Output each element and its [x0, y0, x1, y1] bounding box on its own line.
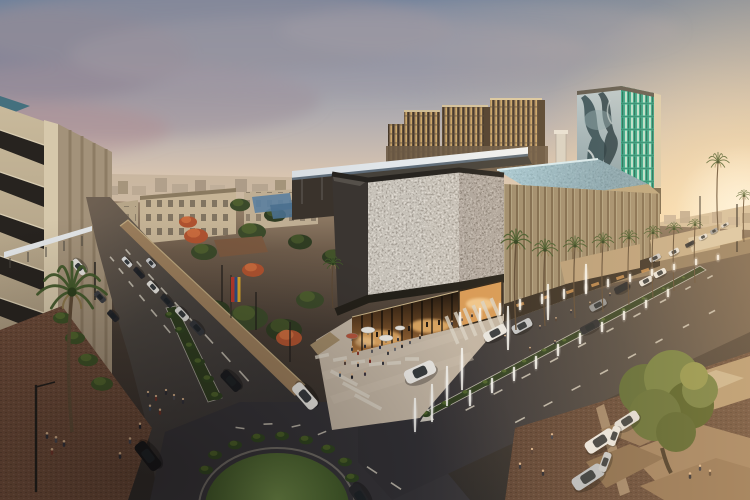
scene-svg: [0, 0, 750, 500]
vignette: [0, 0, 750, 500]
rendering-image: [0, 0, 750, 500]
